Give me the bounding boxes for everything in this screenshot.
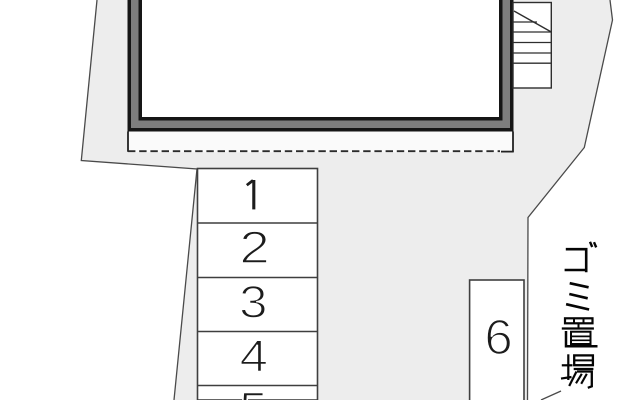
svg-text:4: 4 <box>240 331 268 382</box>
svg-text:5: 5 <box>239 384 267 400</box>
svg-text:3: 3 <box>239 277 267 328</box>
svg-text:6: 6 <box>484 310 512 365</box>
svg-text:2: 2 <box>239 221 269 273</box>
